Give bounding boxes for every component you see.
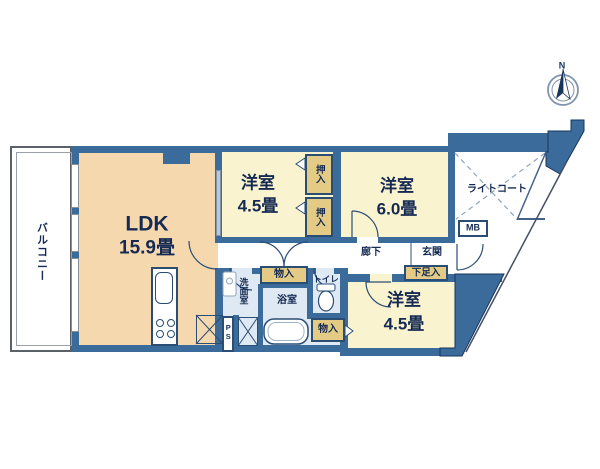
wall (215, 237, 357, 243)
bedroom-east-size: 6.0畳 (377, 201, 418, 218)
kitchen-sink (155, 272, 173, 304)
bedroom-top-label: 洋室 (241, 175, 275, 192)
ldk-size: 15.9畳 (119, 239, 175, 258)
balcony-window (71, 214, 79, 252)
monoire-south-label: 物入 (318, 325, 338, 335)
ldk-label: LDK (125, 214, 168, 235)
wall (378, 237, 455, 243)
storage-hatch (196, 315, 223, 344)
wall (340, 274, 370, 282)
wall (340, 348, 450, 356)
wall (218, 268, 232, 274)
balcony-window (71, 258, 79, 332)
toilet-label: トイレ (313, 275, 339, 284)
balcony-window (71, 164, 79, 208)
balcony-label: バルコニー (36, 222, 47, 282)
monoire-hall-label: 物入 (274, 270, 294, 280)
washroom-label: 洗面室 (239, 278, 248, 305)
entrance-step-line (410, 243, 412, 267)
floor-plan: バルコニー LDK 15.9畳 洋室 4.5畳 洋室 6.0畳 洋室 4.5畳 … (0, 0, 600, 469)
wall (163, 146, 190, 164)
entrance-label: 玄関 (422, 248, 442, 258)
wall (448, 133, 455, 243)
bedroom-top-size: 4.5畳 (238, 198, 279, 215)
wall (258, 284, 310, 288)
bedroom-south-size: 4.5畳 (384, 316, 425, 333)
bedroom-south-label: 洋室 (387, 292, 421, 309)
wall (72, 345, 348, 352)
compass-north-label: N (559, 62, 566, 71)
oshiire-upper-label: 押入 (314, 165, 324, 184)
wall (448, 133, 548, 152)
wall (258, 284, 263, 345)
pipe-space-label: PS (224, 323, 232, 341)
sliding-partition (216, 170, 221, 236)
bathroom-label: 浴室 (277, 296, 297, 306)
oshiire-lower-label: 押入 (314, 208, 324, 227)
wall (72, 146, 218, 153)
bedroom-east-label: 洋室 (380, 178, 414, 195)
corridor-label: 廊下 (361, 248, 381, 258)
wall (333, 146, 341, 243)
light-court-label: ライトコート (467, 185, 527, 195)
compass-icon (548, 69, 578, 105)
meter-box-label: MB (466, 224, 480, 233)
shoe-cabinet-label: 下足入 (412, 268, 441, 278)
storage-hatch (238, 317, 258, 346)
building-corner (546, 120, 584, 174)
